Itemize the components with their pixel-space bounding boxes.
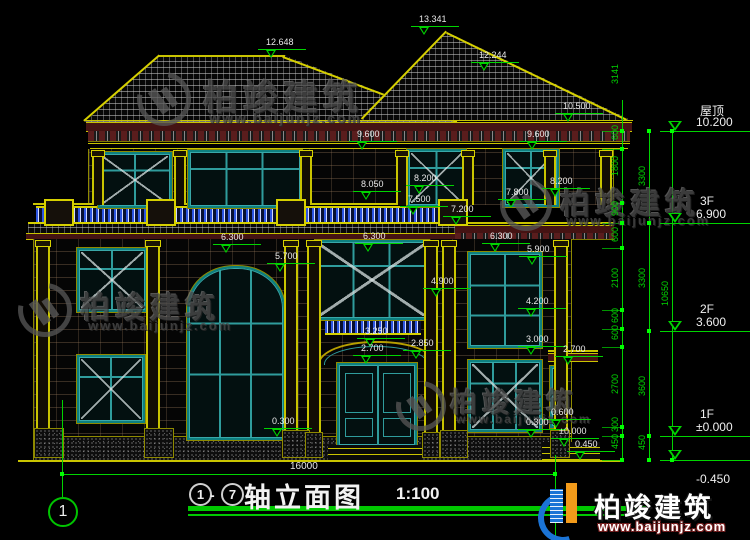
dimension-node <box>647 458 651 462</box>
pilaster <box>146 240 160 454</box>
dimension-label: 6.300 <box>221 232 244 242</box>
balcony-pedestal <box>276 199 306 226</box>
dimension-label: 7.500 <box>408 194 431 204</box>
pilaster <box>174 150 186 205</box>
dimension-chain-line <box>622 100 623 460</box>
dimension-node <box>620 308 624 312</box>
dimension-node <box>670 129 674 133</box>
dimension-label: 6.300 <box>490 231 513 241</box>
dimension-label: 6.300 <box>363 231 386 241</box>
chain-dim-label: 600 <box>610 125 620 140</box>
level-name: 3F <box>700 194 714 208</box>
level-name: 2F <box>700 302 714 316</box>
title-axis-end: 7 <box>221 483 244 506</box>
entrance-door <box>337 363 417 447</box>
ground-line <box>18 460 622 462</box>
level-line <box>660 331 750 332</box>
dimension-label: 7.200 <box>451 204 474 214</box>
dimension-label: 13.341 <box>419 14 447 24</box>
chain-dim-label: 1800 <box>610 156 620 176</box>
dimension-label: 4.200 <box>526 296 549 306</box>
extension-tick <box>602 460 622 461</box>
balcony-pedestal <box>146 199 176 226</box>
entrance-steps <box>328 445 422 461</box>
axis-bubble-1: 1 <box>48 497 78 527</box>
arched-window <box>187 266 285 440</box>
dimension-node <box>620 246 624 250</box>
dimension-node <box>620 221 624 225</box>
logo-url: www.baijunjz.com <box>598 519 726 534</box>
dimension-node <box>647 221 651 225</box>
dimension-node <box>620 327 624 331</box>
pilaster-base <box>440 430 468 458</box>
dimension-label: 9.600 <box>357 129 380 139</box>
company-logo: 柏竣建筑 www.baijunjz.com <box>536 481 750 540</box>
dimension-node <box>620 345 624 349</box>
overall-dim-line <box>62 474 555 475</box>
chain-dim-label: 600 <box>610 308 620 323</box>
dimension-node <box>620 129 624 133</box>
dimension-node <box>620 201 624 205</box>
chain-dim-label: 600 <box>610 227 620 242</box>
level-marker <box>668 321 682 331</box>
dimension-label: 5.700 <box>275 251 298 261</box>
chain-dim-label: 600 <box>610 325 620 340</box>
chain-dim-label: 300 <box>610 417 620 432</box>
dimension-label: 9.600 <box>527 129 550 139</box>
dimension-label: 0.600 <box>551 407 574 417</box>
pilaster <box>442 240 456 454</box>
pilaster-base <box>305 432 323 458</box>
dimension-label: 0.300 <box>272 416 295 426</box>
dimension-label: 8.200 <box>414 173 437 183</box>
dimension-label: 3.250 <box>365 326 388 336</box>
dimension-chain-line <box>649 131 650 460</box>
dimension-label: 7.800 <box>506 187 529 197</box>
dimension-label: 2.700 <box>563 344 586 354</box>
chain-dim-label: 3141 <box>610 64 620 84</box>
chain-dim-label: 900 <box>610 201 620 216</box>
dimension-label: 8.050 <box>361 179 384 189</box>
pilaster-base <box>34 428 64 458</box>
extension-tick <box>602 223 622 224</box>
title-dash: - <box>210 487 215 503</box>
extension-tick <box>602 347 622 348</box>
dimension-label: 2.850 <box>411 338 434 348</box>
pilaster-base <box>422 432 440 458</box>
dimension-label: 12.648 <box>266 37 294 47</box>
level-name: 1F <box>700 407 714 421</box>
level-line <box>660 436 750 437</box>
pilaster <box>300 150 312 205</box>
level-value: 6.900 <box>696 207 726 221</box>
level-value: 3.600 <box>696 315 726 329</box>
pilaster <box>396 150 408 205</box>
dimension-node <box>647 129 651 133</box>
dimension-label: 0.300 <box>526 417 549 427</box>
dimension-node <box>620 147 624 151</box>
level-marker <box>668 213 682 223</box>
balcony-pedestal <box>44 199 74 226</box>
window <box>315 240 429 320</box>
chain-dim-label: 2100 <box>610 268 620 288</box>
dimension-label: 2.700 <box>361 343 384 353</box>
pilaster <box>462 150 474 205</box>
chain-dim-label: 450 <box>637 435 647 450</box>
drawing-title: 轴立面图 <box>244 476 364 515</box>
dimension-label: 3.000 <box>526 334 549 344</box>
chain-dim-label: 450 <box>610 434 620 449</box>
logo-building-icon <box>550 489 563 523</box>
dimension-node <box>647 329 651 333</box>
pilaster <box>307 240 321 454</box>
chain-dim-label: 10650 <box>660 281 670 306</box>
roof-right <box>357 32 633 121</box>
level-value: ±0.000 <box>696 420 733 434</box>
dimension-node <box>647 434 651 438</box>
dimension-node <box>620 434 624 438</box>
dimension-label: 8.200 <box>550 176 573 186</box>
dimension-node <box>620 425 624 429</box>
title-axis-start: 1 <box>189 483 212 506</box>
pilaster <box>92 150 104 205</box>
chain-dim-label: 3300 <box>637 166 647 186</box>
dimension-label: 4.900 <box>431 276 454 286</box>
dimension-label: 0.450 <box>575 439 598 449</box>
cad-elevation-drawing: 柏竣建筑 www.baijunjz.com 柏竣建筑 www.baijunjz.… <box>0 0 750 540</box>
dimension-node <box>670 458 674 462</box>
level-value: 10.200 <box>696 115 733 129</box>
dimension-node <box>620 458 624 462</box>
dimension-label: ±0.000 <box>559 426 586 436</box>
dimension-label: 10.500 <box>563 101 591 111</box>
drawing-scale: 1:100 <box>396 484 439 504</box>
window <box>77 355 145 423</box>
chain-dim-label: 3600 <box>637 376 647 396</box>
chain-dim-label: 2700 <box>610 374 620 394</box>
level-line <box>660 223 750 224</box>
dimension-label: 12.244 <box>479 50 507 60</box>
dimension-chain-line <box>672 131 673 460</box>
window <box>77 248 147 312</box>
chain-dim-label: 3300 <box>637 268 647 288</box>
pilaster-base <box>144 428 174 458</box>
extension-tick <box>602 248 622 249</box>
dimension-label: 5.900 <box>527 244 550 254</box>
pilaster <box>36 240 50 454</box>
overall-width-dim: 16000 <box>290 461 318 472</box>
level-marker <box>668 426 682 436</box>
logo-swoosh-icon <box>529 484 597 540</box>
